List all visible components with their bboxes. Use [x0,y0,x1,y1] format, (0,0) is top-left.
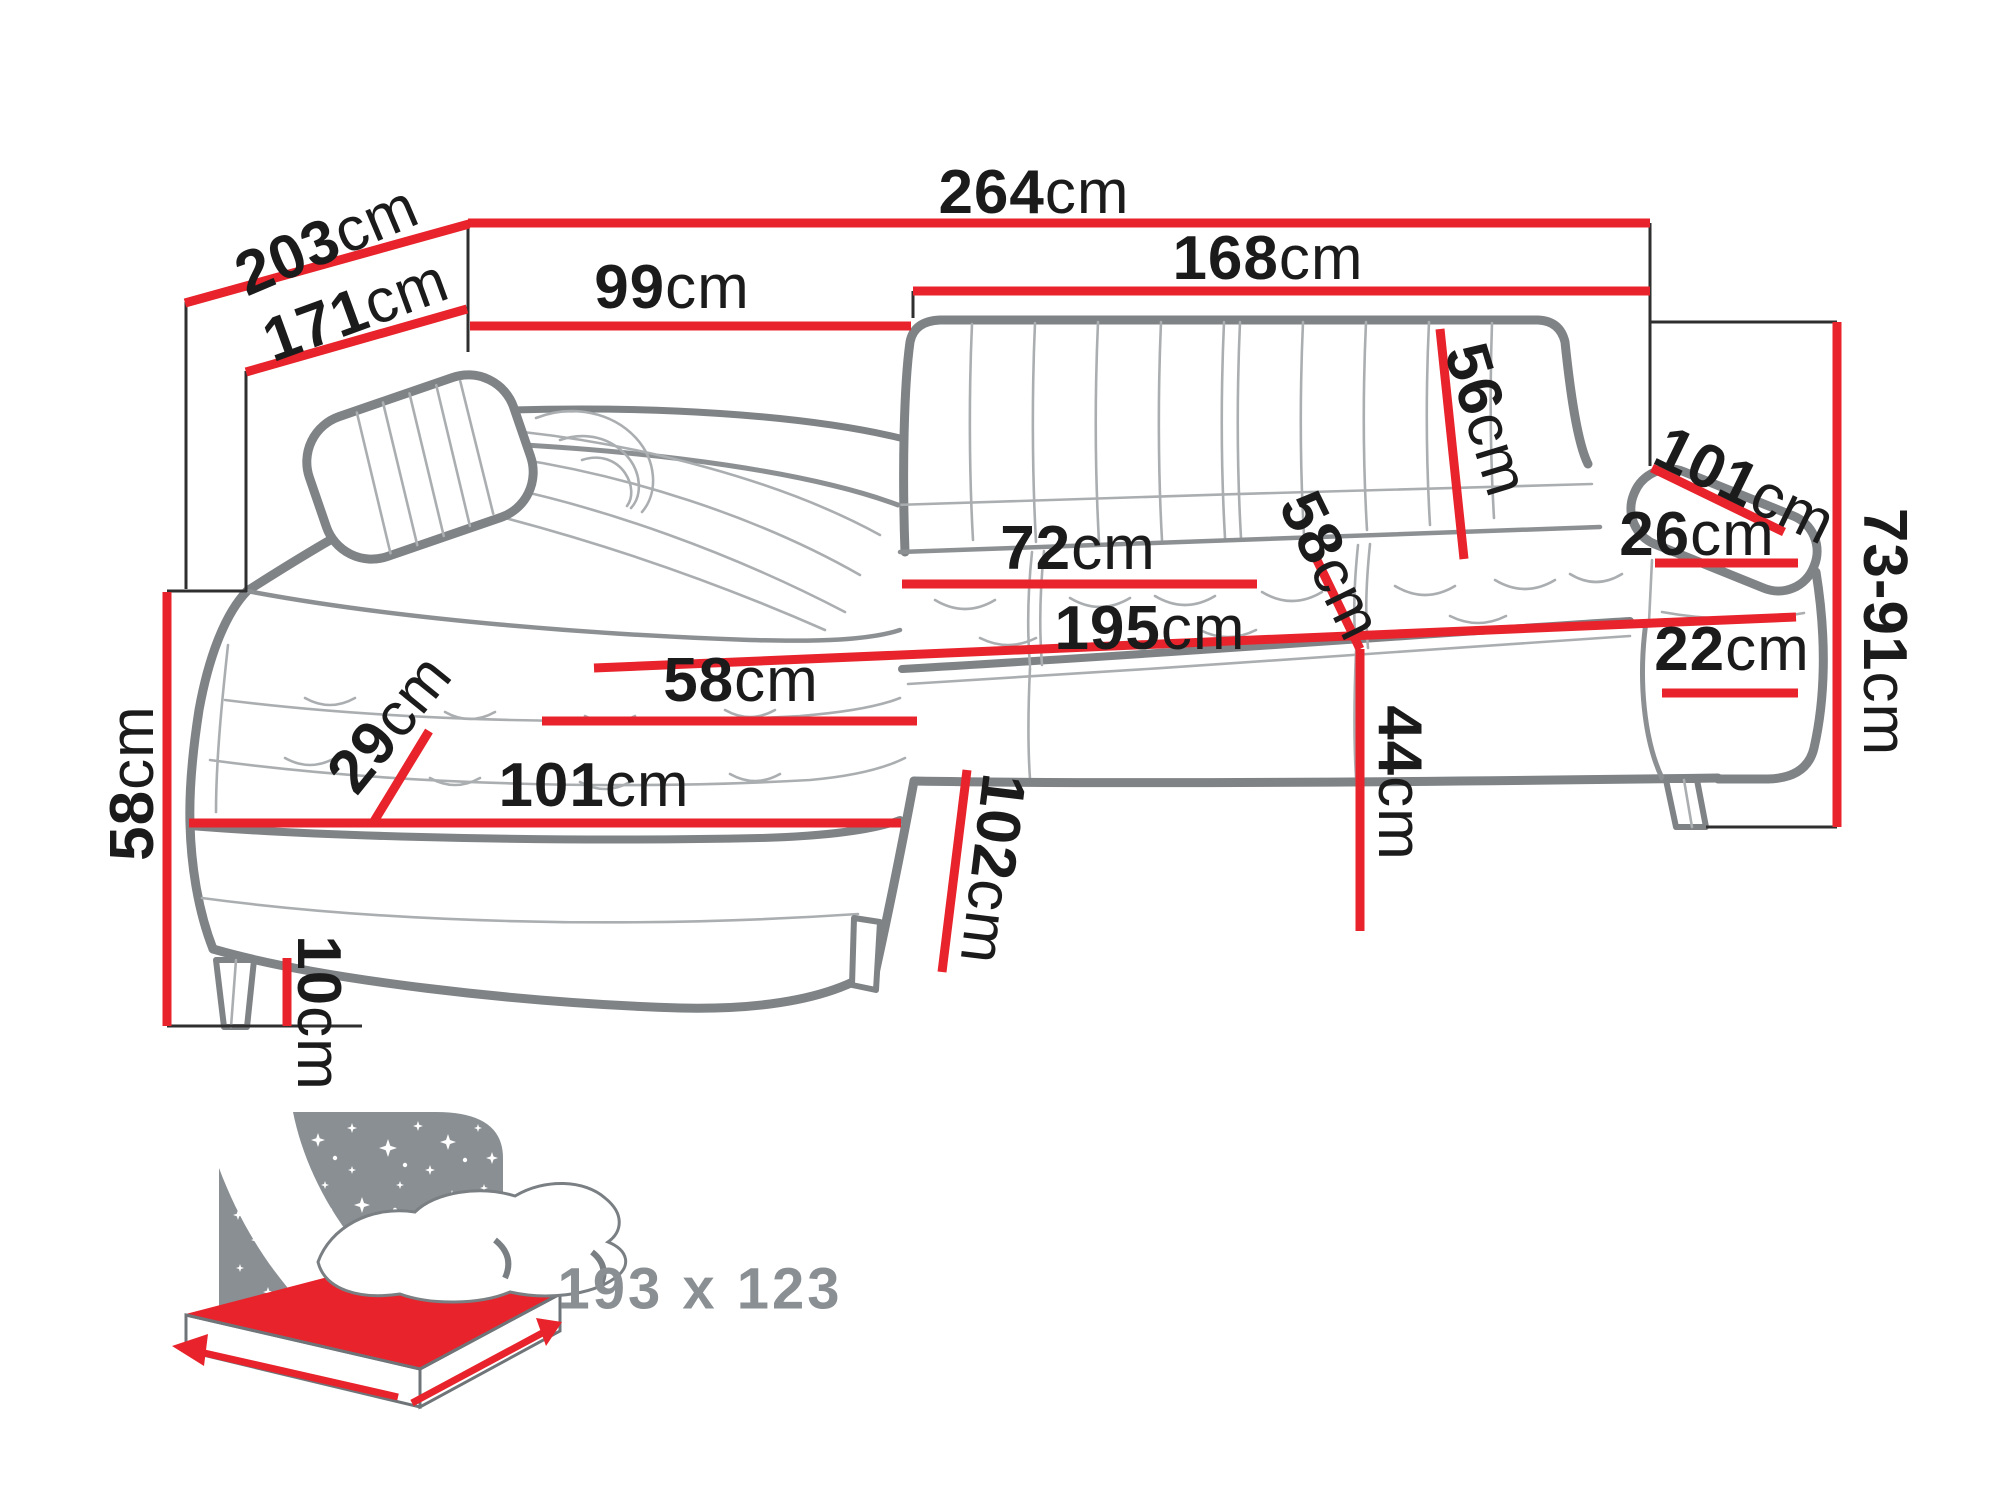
dim-label-back-width: 168cm [1172,228,1363,290]
dim-label-armrest-width: 26cm [1619,504,1775,566]
bed-size-label: 193 x 123 [557,1256,842,1323]
dim-label-leg-height: 10cm [287,935,349,1091]
diagram-canvas: 203cm 264cm 171cm 99cm 168cm 56cm 101cm … [0,0,2000,1500]
dim-label-chaise-height: 58cm [102,705,164,861]
sofa-headrest-pillow [294,362,546,572]
dim-label-total-width: 264cm [938,162,1129,224]
sofa-chaise-back [482,409,900,630]
dim-label-chaise-seat-width: 58cm [663,650,819,712]
dim-label-height-range: 73-91cm [1853,508,1915,756]
dim-label-chaise-back-width: 99cm [594,257,750,319]
dim-label-armrest-height: 22cm [1654,619,1810,681]
dim-label-seat-depth: 72cm [1000,518,1156,580]
dim-label-seat-height: 44cm [1368,705,1430,861]
dim-label-seat-length: 195cm [1054,598,1245,660]
dim-label-chaise-length: 101cm [498,755,689,817]
